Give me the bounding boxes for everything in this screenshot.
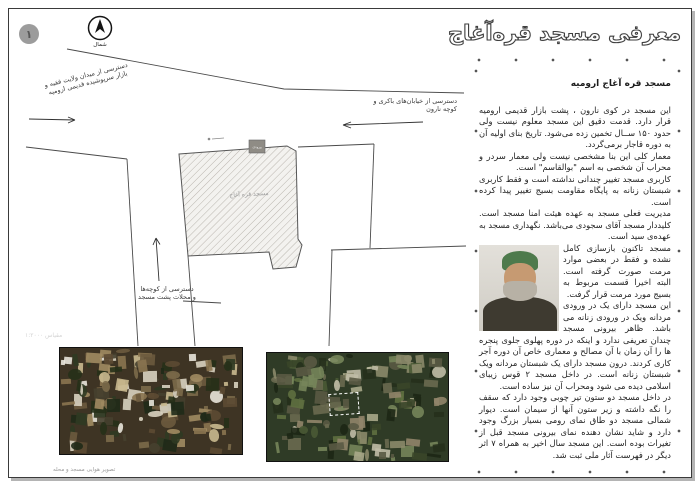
mosque-outline-marker	[328, 392, 359, 416]
aerial-texture-block	[434, 396, 448, 406]
aerial-texture-block	[383, 382, 393, 393]
aerial-texture-block	[347, 423, 358, 431]
aerial-texture-block	[367, 437, 372, 445]
article-column: مسجد قره آغاج ارومیه این مسجد در کوی نار…	[479, 79, 671, 461]
scale-label: مقیاس ۱:۲۰۰۰	[25, 332, 62, 339]
aerial-texture-block	[348, 378, 360, 387]
aerial-texture-block	[288, 438, 301, 450]
aerial-texture-block	[186, 385, 195, 392]
article-heading: مسجد قره آغاج ارومیه	[479, 79, 671, 91]
aerial-texture-block	[313, 404, 330, 414]
portrait-jacket	[483, 297, 557, 331]
aerial-texture-block	[367, 414, 378, 421]
aerial-texture-block	[395, 355, 411, 365]
aerial-texture-block	[354, 451, 365, 462]
aerial-texture-block	[205, 360, 212, 372]
aerial-texture-block	[397, 382, 411, 389]
aerial-texture-block	[318, 447, 327, 452]
aerial-texture-block	[222, 430, 226, 435]
aerial-texture-block	[234, 382, 238, 388]
aerial-texture-block	[429, 357, 442, 367]
aerial-texture-block	[189, 353, 196, 360]
aerial-texture-block	[330, 354, 345, 364]
aerial-texture-block	[72, 354, 79, 366]
aerial-texture-block	[372, 365, 379, 370]
aerial-texture-block	[359, 416, 366, 429]
aerial-texture-block	[329, 442, 344, 451]
aerial-texture-block	[222, 398, 236, 407]
aerial-texture-block	[149, 443, 161, 454]
documentation-sheet: ۱ معرفی مسجد قره‌آغاج	[8, 8, 692, 478]
dotted-divider-top	[477, 58, 677, 62]
aerial-texture-block	[391, 454, 394, 458]
aerial-texture-block	[385, 439, 389, 448]
access-label-alleys: دسترسی از کوچه‌ها و محلات پشت مسجد	[135, 285, 199, 301]
mosque-building-footprint	[179, 146, 302, 269]
mosque-entrance-marker: ورودی	[249, 140, 265, 153]
aerial-texture-block	[161, 368, 164, 374]
portrait-beard	[503, 281, 537, 301]
aerial-texture-block	[340, 424, 348, 436]
dotted-divider-bottom	[477, 470, 677, 474]
paragraph: مدیریت فعلی مسجد به عهده هیئت امنا مسجد …	[479, 208, 671, 243]
caretaker-portrait-photo	[479, 245, 559, 331]
aerial-texture-block	[389, 441, 405, 449]
aerial-texture-block	[86, 352, 102, 363]
aerial-texture-block	[69, 432, 77, 442]
aerial-photo-2	[266, 352, 449, 462]
aerial-texture-block	[141, 386, 151, 392]
north-arrow-icon	[89, 17, 112, 40]
aerial-texture-block	[176, 388, 183, 396]
paragraph: در داخل مسجد دو ستون تیر چوبی وجود دارد …	[479, 392, 671, 461]
aerial-texture-block	[311, 426, 318, 438]
aerial-texture-block	[432, 443, 445, 452]
aerial-texture-block	[423, 379, 438, 387]
aerial-texture-block	[224, 382, 228, 386]
aerial-texture-block	[110, 367, 123, 373]
paragraph: معمار کلی این بنا مشخصی نیست ولی معمار س…	[479, 151, 671, 174]
aerial-photo-1	[59, 347, 243, 455]
aerial-texture-block	[116, 348, 130, 353]
aerial-texture-block	[302, 375, 319, 387]
aerial-texture-block	[94, 399, 104, 410]
aerial-texture-block	[106, 399, 119, 412]
aerial-texture-block	[167, 429, 180, 434]
aerial-texture-block	[304, 356, 317, 368]
aerial-texture-block	[365, 449, 369, 461]
aerial-texture-block	[100, 422, 107, 435]
aerial-texture-block	[122, 434, 126, 441]
aerial-texture-block	[147, 393, 159, 399]
aerial-texture-block	[137, 360, 148, 373]
aerial-texture-block	[102, 381, 111, 393]
entrance-label: ورودی	[252, 145, 262, 149]
aerial-texture-block	[162, 385, 170, 389]
aerial-texture-block	[139, 417, 143, 421]
aerial-texture-block	[307, 420, 322, 424]
aerial-texture-block	[412, 405, 425, 418]
aerial-texture-block	[277, 415, 286, 419]
access-label-bakeri: دسترسی از خیابان‌های باکری و کوچه نارون	[339, 97, 457, 113]
aerial-texture-block	[325, 424, 330, 428]
aerial-texture-block	[106, 435, 114, 442]
aerial-texture-block	[208, 429, 220, 443]
photo-caption: تصویر هوایی مسجد و محله	[53, 467, 115, 473]
site-plan-map: ورودی	[11, 11, 471, 346]
aerial-texture-block	[345, 353, 353, 358]
aerial-texture-block	[406, 438, 421, 446]
dotted-divider-right	[677, 69, 681, 469]
aerial-texture-block	[427, 453, 441, 458]
aerial-texture-block	[399, 401, 413, 408]
aerial-texture-block	[431, 358, 434, 363]
aerial-texture-block	[228, 444, 232, 450]
aerial-texture-block	[116, 378, 130, 392]
aerial-texture-block	[171, 433, 180, 444]
aerial-texture-block	[149, 428, 155, 433]
aerial-texture-block	[275, 441, 280, 452]
aerial-texture-block	[362, 369, 376, 380]
aerial-texture-block	[61, 360, 66, 365]
dotted-divider-left	[474, 69, 478, 469]
annotation-mark	[208, 138, 224, 141]
aerial-texture-block	[104, 354, 113, 365]
aerial-texture-block	[76, 412, 88, 425]
north-label: شمال	[87, 42, 113, 48]
paragraph: این مسجد در کوی نارون ، پشت بازار قدیمی …	[479, 105, 671, 151]
aerial-texture-block	[434, 412, 444, 417]
aerial-texture-block	[117, 422, 123, 432]
aerial-texture-block	[372, 424, 382, 430]
aerial-texture-block	[277, 374, 292, 385]
aerial-texture-block	[220, 386, 226, 394]
aerial-texture-block	[299, 425, 309, 434]
aerial-texture-block	[171, 402, 184, 416]
aerial-texture-block	[204, 413, 211, 421]
aerial-texture-block	[135, 394, 141, 402]
aerial-texture-block	[412, 363, 423, 373]
aerial-texture-block	[143, 371, 158, 382]
aerial-texture-block	[278, 385, 293, 389]
aerial-texture-block	[372, 443, 382, 451]
aerial-texture-block	[387, 409, 396, 422]
aerial-texture-block	[149, 400, 154, 406]
aerial-texture-block	[206, 378, 219, 391]
aerial-texture-block	[210, 447, 223, 454]
aerial-texture-block	[224, 418, 229, 428]
aerial-texture-block	[333, 380, 339, 391]
sheet-title: معرفی مسجد قره‌آغاج	[448, 21, 681, 45]
aerial-texture-block	[379, 452, 386, 459]
aerial-texture-block	[122, 399, 131, 411]
aerial-texture-block	[314, 390, 327, 404]
paragraph: کاربری مسجد تغییر چندانی نداشته است و فق…	[479, 174, 671, 209]
aerial-texture-block	[194, 429, 207, 435]
aerial-texture-block	[412, 452, 428, 461]
aerial-texture-block	[360, 432, 368, 444]
